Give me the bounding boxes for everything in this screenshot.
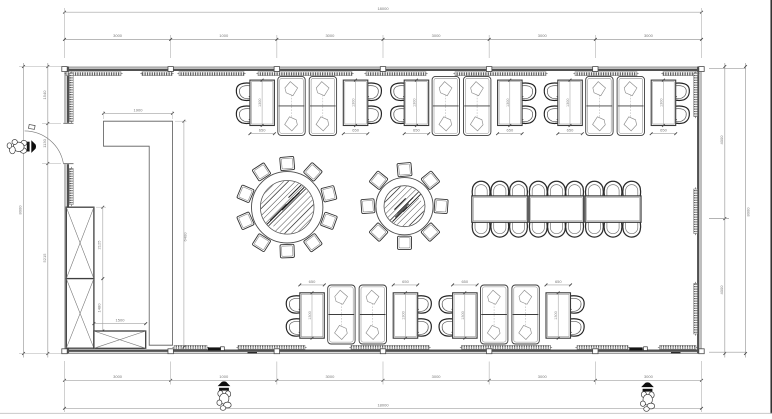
svg-text:18000: 18000 [377,402,389,407]
svg-text:650: 650 [352,128,359,133]
svg-text:1500: 1500 [116,318,126,323]
svg-text:650: 650 [461,279,468,284]
svg-text:650: 650 [660,128,667,133]
svg-text:650: 650 [567,128,574,133]
svg-text:4000: 4000 [719,135,724,145]
svg-text:650: 650 [309,279,316,284]
svg-text:3000: 3000 [538,33,548,38]
svg-text:1900: 1900 [134,107,144,112]
svg-text:5215: 5215 [42,253,47,263]
svg-text:3000: 3000 [432,374,442,379]
svg-text:650: 650 [507,128,514,133]
svg-text:1000: 1000 [219,374,229,379]
svg-text:18000: 18000 [377,6,389,11]
svg-text:3000: 3000 [644,33,654,38]
svg-text:2125: 2125 [97,240,102,250]
svg-text:3000: 3000 [644,374,654,379]
svg-text:3000: 3000 [432,33,442,38]
svg-text:3000: 3000 [325,33,335,38]
svg-text:4000: 4000 [719,285,724,295]
svg-text:8000: 8000 [746,207,751,217]
svg-text:3000: 3000 [538,374,548,379]
svg-text:650: 650 [259,128,266,133]
svg-text:3000: 3000 [113,374,123,379]
svg-text:8000: 8000 [18,205,23,215]
svg-text:650: 650 [402,279,409,284]
svg-text:650: 650 [413,128,420,133]
svg-text:3000: 3000 [325,374,335,379]
svg-text:1480: 1480 [97,303,102,313]
svg-text:6400: 6400 [182,232,187,242]
svg-text:650: 650 [555,279,562,284]
svg-text:1540: 1540 [42,90,47,100]
svg-text:1000: 1000 [219,33,229,38]
svg-text:1130: 1130 [42,138,47,147]
svg-text:3000: 3000 [113,33,123,38]
